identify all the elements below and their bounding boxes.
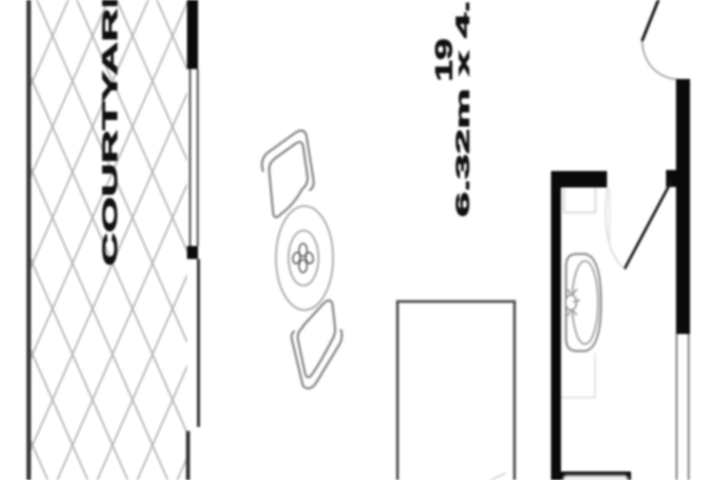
svg-text:6.32m x 4.9m: 6.32m x 4.9m xyxy=(453,0,473,217)
svg-text:COURTYARD: COURTYARD xyxy=(98,0,121,266)
